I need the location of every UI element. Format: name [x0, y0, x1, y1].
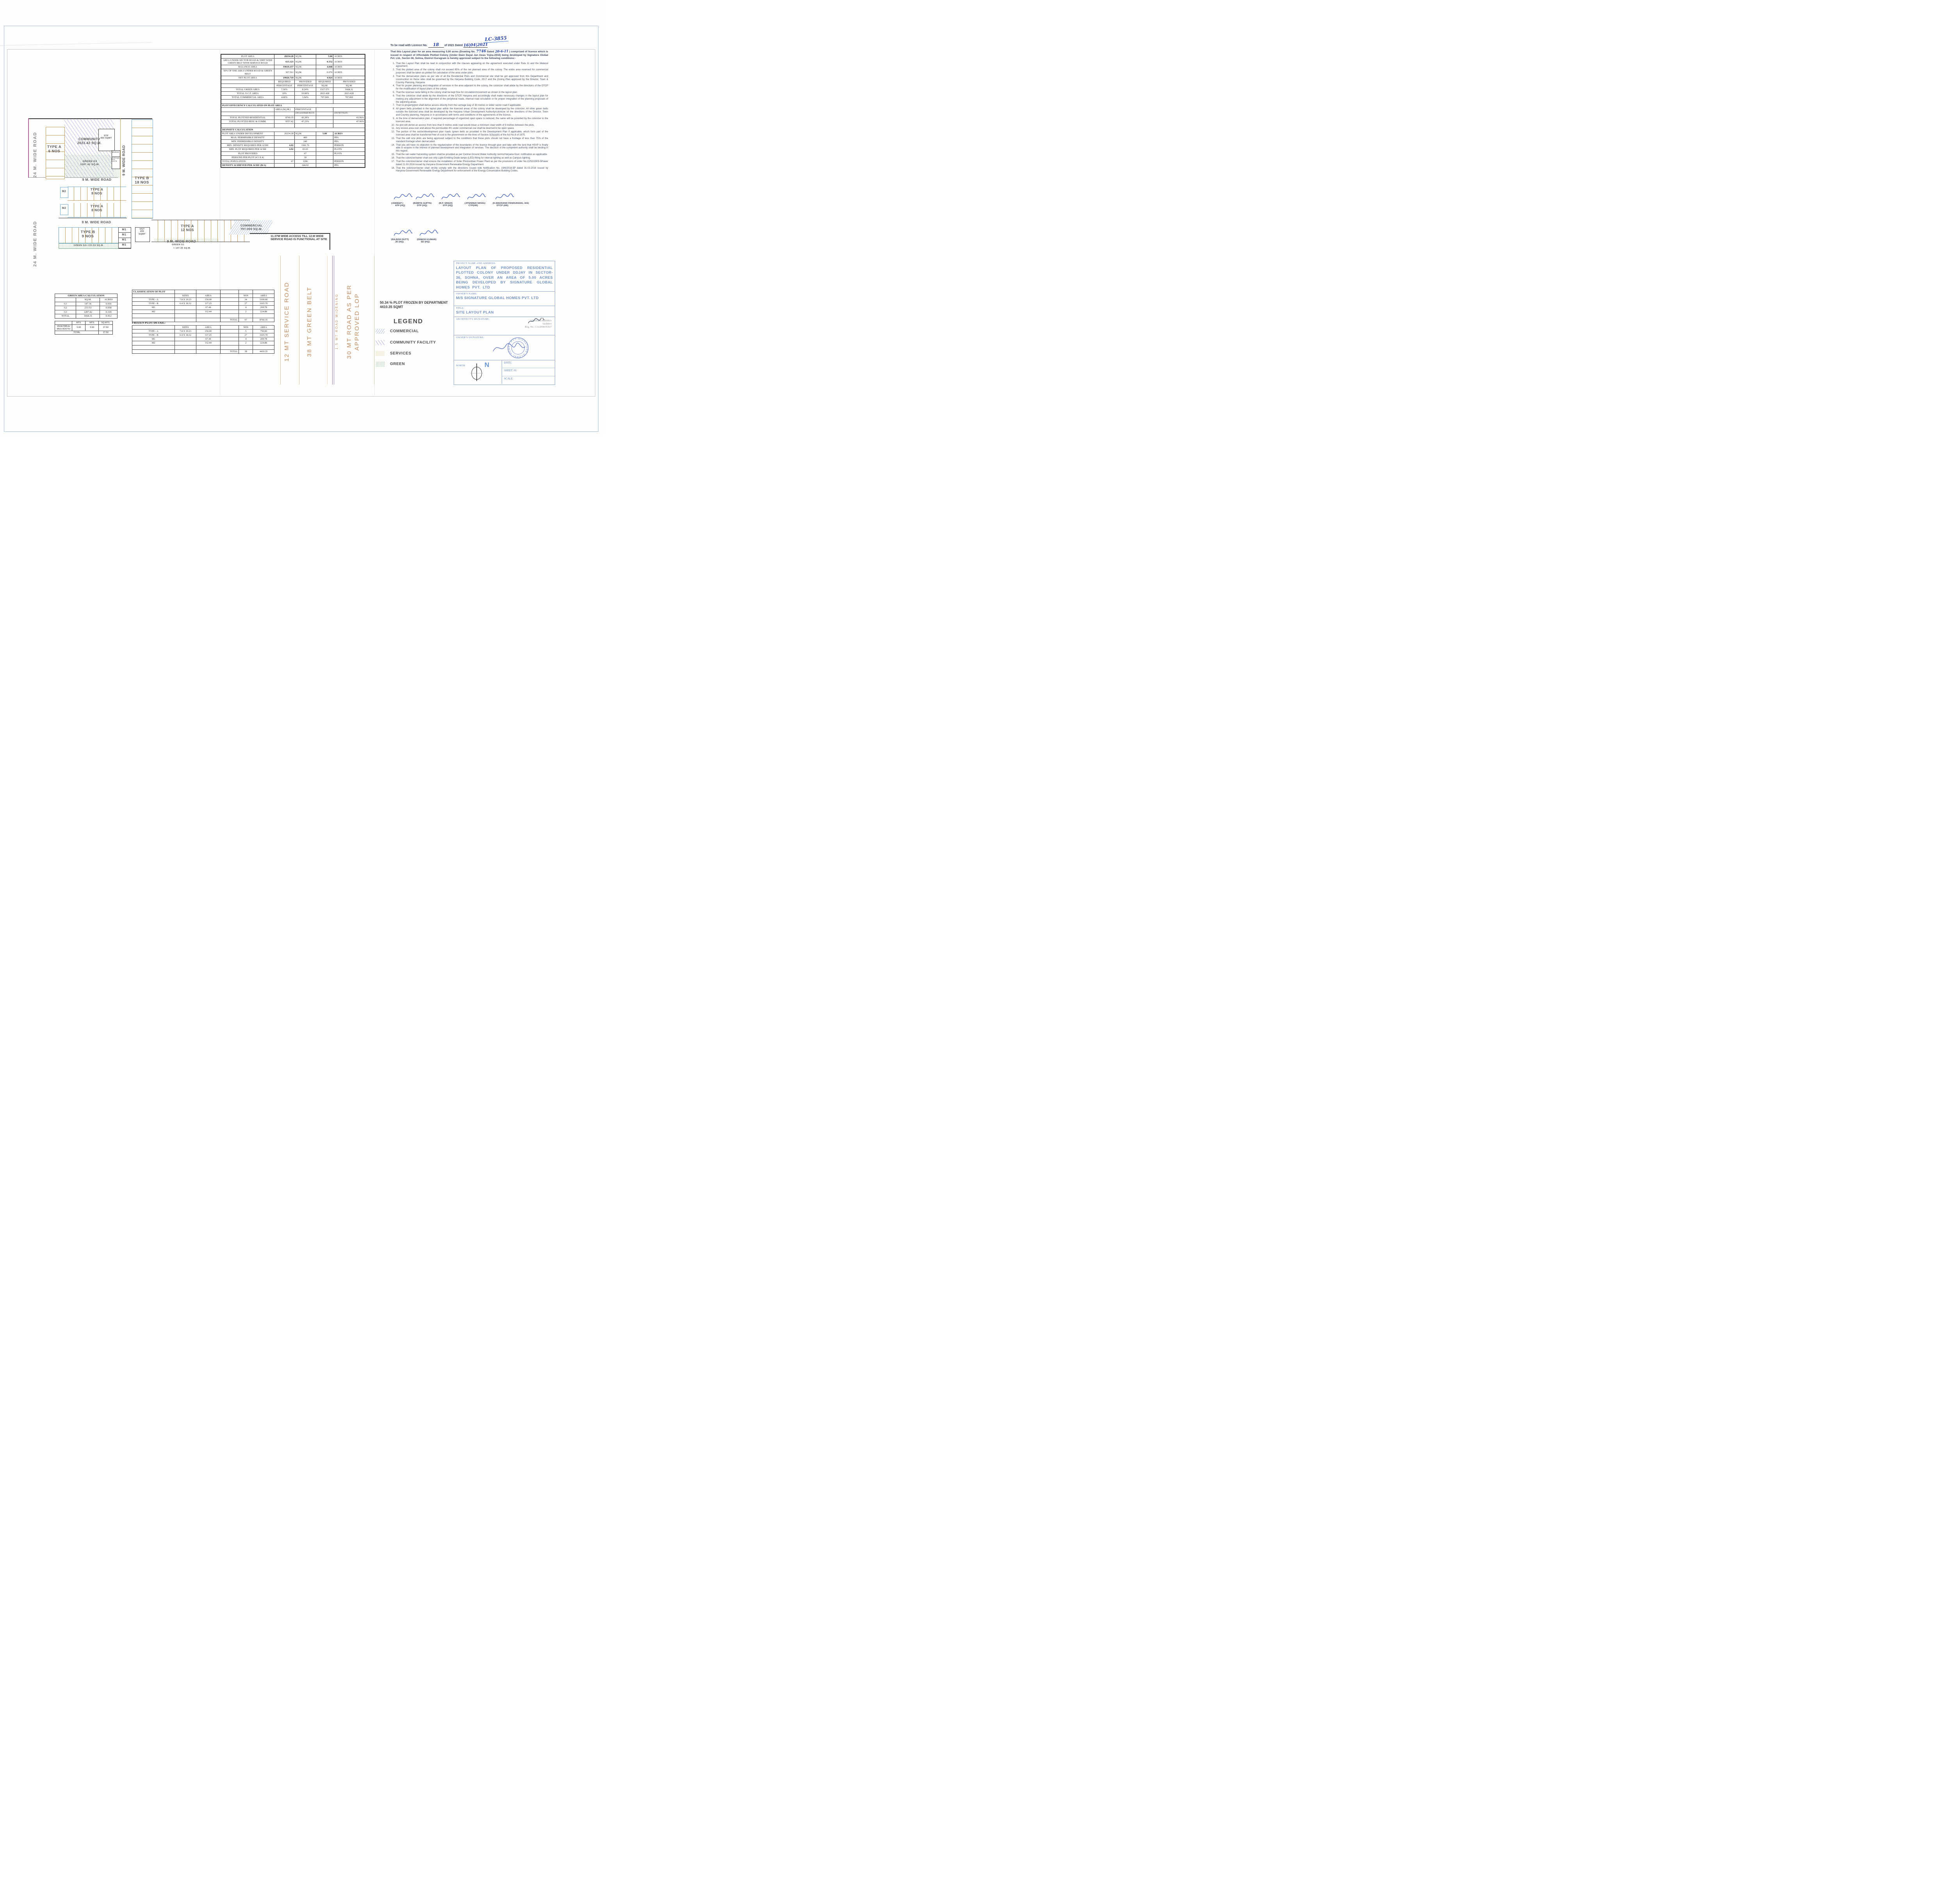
owner-label: OWNER'S NAME: — [456, 292, 553, 295]
table-cell: SQ.M. — [294, 76, 316, 80]
owner-signature-section: OWNER'S SIGNATURE: SIGNATURE GLOBAL HOME… — [454, 335, 555, 360]
condition-item: The portion of the sector/development pl… — [395, 130, 548, 137]
table-row: TYPE - A7.8 X 19.23150.00 5750.00 — [132, 330, 274, 333]
table-cell — [333, 108, 365, 112]
road-9m-mid: 9 M. WIDE ROAD — [77, 221, 116, 224]
table-cell — [221, 123, 274, 128]
table-cell — [316, 155, 333, 159]
architect-section: ARCHITECT'S SIGNATURE: AMITESH MISHRA Ar… — [454, 317, 555, 335]
legend-item-green: GREEN — [376, 362, 405, 367]
table-cell — [274, 136, 295, 140]
signatory-post: DTCP (HR) — [497, 205, 518, 207]
table-cell: 3165.70 — [253, 333, 274, 337]
table-row: PLOT AREA UNDER DEVELOPMENT20234.28SQ.M.… — [221, 132, 365, 135]
band-line-2 — [299, 256, 299, 385]
table-cell: MTS. — [72, 321, 85, 325]
table-cell: TYPE - B — [132, 302, 175, 306]
table-cell — [132, 349, 175, 353]
table-row: CLASSIFICATION OF PLOT — [132, 290, 274, 294]
table-cell: PPA — [333, 136, 365, 140]
condition-item: That the colonizer shall abide by the di… — [395, 94, 548, 104]
license-header-mid: of 2021 Dated — [445, 43, 463, 47]
table-cell — [175, 337, 196, 341]
signature-block: (BABITA GUPTA)DTP (HQ) — [413, 192, 438, 207]
table-row: TOTAL COMMERCIAL AREA4.00%3.94%797.06979… — [221, 96, 365, 100]
condition-item: That you will have no objection to the r… — [395, 144, 548, 153]
table-cell: AREA — [196, 294, 220, 298]
drawing-no-handwritten: 7746 — [476, 50, 486, 54]
table-cell: 400 — [294, 136, 316, 140]
table-cell: REQUIRED — [274, 80, 295, 84]
frozen-plot-heading: FROZEN PLOT DETAIL: — [132, 321, 166, 324]
north-n-letter: N — [484, 361, 489, 369]
table-cell — [316, 144, 333, 148]
table-cell — [175, 345, 196, 349]
table-cell — [196, 313, 220, 318]
table-cell — [220, 294, 239, 298]
table-cell: 2 — [239, 310, 253, 313]
condition-item: That no property/plot shall derive acces… — [395, 104, 548, 107]
road-24m-lower: 24 M. WIDE ROAD — [33, 218, 38, 269]
condition-item: No plot will derive an access from less … — [395, 124, 548, 127]
table-cell: 8760.35 — [274, 116, 295, 119]
table-row: MTS.MTS.SQ.MTS. — [55, 321, 113, 325]
table-row: 50% OF THE AREA UNDER ROAD & GREEN BELT3… — [221, 69, 365, 76]
table-cell: 117.25 — [196, 333, 220, 337]
table-cell: ACRES — [333, 59, 365, 65]
table-cell: VEGETABLE/ MILK BOOTH — [55, 325, 72, 331]
table-cell: 38 — [239, 349, 253, 353]
table-cell — [175, 349, 196, 353]
band-30mt-road-1: 30 MT ROAD AS PER — [346, 261, 353, 383]
table-cell: MIN. PLOT REQUIRED PER ACRE — [221, 148, 274, 151]
table-row: MIN. PERMISSIBLE DENSITY 240 PPA — [221, 140, 365, 144]
table-cell — [220, 326, 239, 330]
table-cell: 5100.00 — [253, 298, 274, 302]
table-cell: NET PLOT AREA — [221, 76, 274, 80]
table-cell: 117.25 — [196, 302, 220, 306]
signatory-post: STP (HQ) — [443, 205, 464, 207]
table-cell: ACRES — [100, 298, 118, 302]
table-cell: TOTAL GREEN AREA — [221, 87, 274, 91]
license-conditions-list: That this Layout Plan shall be read in c… — [390, 62, 548, 173]
table-cell: 10% — [274, 92, 295, 96]
table-cell: PLOT AREA — [221, 54, 274, 59]
table-cell — [274, 151, 295, 155]
legend-swatch — [376, 362, 385, 367]
table-row: DENSITY ACHIEVED PER ACRE (B/A) 244.92 P… — [221, 163, 365, 167]
dg-ess: DG/ESS — [111, 151, 120, 153]
table-cell: 0.152 — [316, 59, 333, 65]
table-cell — [175, 313, 196, 318]
table-cell: 1668.31 — [76, 314, 100, 318]
table-cell — [253, 290, 274, 294]
table-cell: 18 — [294, 155, 316, 159]
table-cell — [221, 112, 274, 116]
road-9m-mid-top — [59, 218, 127, 218]
table-cell: 4.924 — [316, 76, 333, 80]
table-cell: 6.4 X 18.32 — [175, 333, 196, 337]
table-cell: 4.848 — [316, 65, 333, 69]
plot-type-b18: TYPE B 18 NOS — [131, 176, 153, 185]
title-block: PROJECT NAME AND ADDRESS: LAYOUT PLAN OF… — [454, 261, 555, 385]
table-cell: 4 — [239, 306, 253, 310]
table-cell: NOS — [239, 326, 253, 330]
table-row: TYPE - A7.8 X 19.23150.00 345100.00 — [132, 298, 274, 302]
table-cell — [239, 290, 253, 294]
table-cell: PLOT EFFECIENCY CALCULATED ON PLOT AREA — [221, 104, 365, 108]
table-cell: PERSON — [333, 159, 365, 163]
table-cell: PROVIDED — [333, 80, 365, 84]
signatory-post: DTP (HQ) — [417, 205, 438, 207]
frozen-note: 50.34 % PLOT FROZEN BY DEPARTMENT 4410.3… — [380, 301, 458, 310]
table-cell: 307.561 — [274, 69, 295, 76]
drawing-date-handwritten: 20-6-21 — [495, 49, 509, 53]
table-cell: AREA — [196, 326, 220, 330]
legend-label: SERVICES — [390, 351, 411, 356]
table-cell — [274, 155, 295, 159]
table-row: TOTAL O.C.F. AREA10%10.00%2023.4282023.4… — [221, 92, 365, 96]
scan-crease-top — [0, 42, 152, 46]
signatory-post: SD (HQ) — [421, 241, 442, 243]
table-cell: 4.92 — [274, 148, 295, 151]
green-g1-area: = 147.36 SQ.M. — [173, 247, 201, 249]
table-cell: GREEN AREA CALCULATION — [55, 294, 118, 298]
project-section: PROJECT NAME AND ADDRESS: LAYOUT PLAN OF… — [454, 261, 555, 292]
table-row: TYPE - B6.4 X 18.32117.25 273165.70 — [132, 333, 274, 337]
table-cell: 19619.157 — [274, 65, 295, 69]
table-cell: TOTAL PLOTTED RESIDENTIAL — [221, 116, 274, 119]
table-cell — [221, 100, 274, 104]
condition-item: That the colonizer/owner shall strictly … — [395, 167, 548, 173]
type-b18-plots — [132, 119, 153, 219]
table-cell: 5.00 — [72, 325, 85, 331]
table-row: BALANCE AREA19619.157SQ.M.4.848ACRES — [221, 65, 365, 69]
table-cell — [221, 80, 274, 84]
ugt: UGT 200 SQMT — [135, 228, 149, 235]
table-cell: 8760.35 — [253, 318, 274, 322]
table-cell: 224.88 — [253, 310, 274, 313]
table-cell — [239, 313, 253, 318]
table-row: PLOT EFFECIENCY CALCULATED ON PLOT AREA — [221, 104, 365, 108]
table-cell — [220, 345, 239, 349]
table-cell: TOTAL POPULATION — [221, 159, 274, 163]
table-row: MIN. PLOT REQUIRED PER ACRE4.9265.65 PLO… — [221, 148, 365, 151]
table-cell — [333, 123, 365, 128]
north-cell: NORTH: N — [454, 360, 502, 384]
table-cell: 269.78 — [253, 337, 274, 341]
m1-4: M1 — [118, 243, 130, 247]
table-cell: M2 — [132, 341, 175, 345]
table-cell: PERSONS PER PLOT (4.5 X 4) — [221, 155, 274, 159]
table-cell: 224.88 — [253, 341, 274, 345]
table-cell — [239, 345, 253, 349]
table-cell — [220, 341, 239, 345]
table-cell: 19926.719 — [274, 76, 295, 80]
table-cell: SQ.M. — [294, 59, 316, 65]
signature-scribble — [494, 192, 515, 202]
condition-item: That for proper planning and integration… — [395, 84, 548, 91]
table-cell: M1 — [132, 337, 175, 341]
table-cell: AREA (SQ.M.) — [274, 108, 295, 112]
table-cell: 5 — [239, 330, 253, 333]
table-cell — [220, 333, 239, 337]
table-row — [132, 313, 274, 318]
table-cell — [132, 326, 175, 330]
plot-type-a8-1: TYPE A 8 NOS — [83, 188, 110, 195]
table-cell: 5.00 — [316, 132, 333, 135]
table-cell: 43.29% — [294, 116, 316, 119]
license-date-handwritten: 16|04|2021 — [463, 43, 488, 48]
plot-type-a12: TYPE A 12 NOS — [171, 224, 204, 232]
table-cell — [220, 310, 239, 313]
table-row: GREEN AREA CALCULATION — [55, 294, 118, 298]
table-cell: 112.44 — [196, 341, 220, 345]
table-row: (ON LICENSED PLOT) (ON NET PLOT) — [221, 112, 365, 116]
table-cell: (ON LICENSED PLOT) — [294, 112, 316, 116]
table-cell: 5.00 — [316, 54, 333, 59]
table-row: AREA UNDER SECTOR ROAD & 50MT WIDE GREEN… — [221, 59, 365, 65]
table-cell: MAX. PERMISSIBLE DENSITY — [221, 136, 274, 140]
table-cell: 67.44 — [196, 337, 220, 341]
plot-type-b9: TYPE B 9 NOS — [71, 230, 104, 239]
table-cell — [316, 136, 333, 140]
plot-type-a8-2: TYPE A 8 NOS — [83, 205, 110, 212]
table-cell: MIN. PERMISSIBLE DENSITY — [221, 140, 274, 144]
table-cell: MIN. DENSITY REQUIRED PER ACRE — [221, 144, 274, 148]
green-g1: GREEN G1 — [172, 244, 195, 246]
license-header: To be read with Licence No. 18 of 2021 D… — [390, 42, 548, 48]
condition-item: That the demarcation plans as per site o… — [395, 75, 548, 84]
legend-label: COMMUNITY FACILITY — [390, 340, 436, 345]
signature-scribble — [415, 192, 435, 202]
table-cell: 1287.42 — [76, 310, 100, 314]
signature-scribble — [440, 192, 461, 202]
table-cell — [175, 290, 196, 294]
condition-item: That the colonizer/owner shall ensure th… — [395, 160, 548, 166]
frozen-note-line2: 4410.35 SQMT — [380, 305, 458, 309]
road-9m-vert: 9 M. WIDE ROAD — [122, 137, 126, 183]
table-cell — [221, 84, 274, 87]
table-cell — [274, 163, 295, 167]
table-cell — [274, 140, 295, 144]
condition-item: That the plotted area of the colony shal… — [395, 68, 548, 75]
legend-swatch — [376, 340, 385, 345]
band-line-3 — [327, 256, 328, 385]
table-cell: 9557.42 — [274, 119, 295, 123]
table-cell — [316, 140, 333, 144]
table-cell — [294, 100, 316, 104]
condition-item: That the revenue rasta falling in the co… — [395, 91, 548, 94]
table-cell: PPA — [333, 163, 365, 167]
table-cell: M1 — [132, 306, 175, 310]
table-cell: 7.50% — [274, 87, 295, 91]
sheet-row: SHEET: 01 — [502, 368, 555, 376]
green-g3: GREEN G3 1287.42 SQ.M. — [68, 160, 111, 166]
table-cell: SQ.M. — [294, 132, 316, 135]
north-arrow-icon — [469, 362, 484, 382]
commercial-area: COMMERCIAL 797.069 SQ.M. — [233, 224, 269, 231]
table-row: PERSONS PER PLOT (4.5 X 4) 18 — [221, 155, 365, 159]
signature-block: (DINESH KUMAR)SD (HQ) — [417, 228, 442, 243]
band-road-widening: 1.5 MT ROAD WIDENING — [335, 269, 338, 374]
table-cell — [316, 159, 333, 163]
table-row — [132, 345, 274, 349]
table-cell — [316, 112, 333, 116]
table-cell: TYPE - B — [132, 333, 175, 337]
table-row: TOTAL PLOTTED RESIDENTIAL8760.3543.29% 4… — [221, 116, 365, 119]
table-cell: 1206 — [294, 159, 316, 163]
table-cell: 4410.35 — [253, 349, 274, 353]
table-cell: ACRES — [333, 69, 365, 76]
legend-label: GREEN — [390, 362, 405, 366]
license-number-handwritten: 18 — [433, 42, 439, 48]
table-cell: SQ.M. — [294, 65, 316, 69]
table-cell: 43.96% — [333, 116, 365, 119]
table-cell: PERCENTAGE — [294, 108, 316, 112]
table-cell: 4.00% — [274, 96, 295, 100]
table-cell: 10.00% — [294, 92, 316, 96]
table-cell: PERCENTAGE — [294, 84, 316, 87]
condition-item: That the rain water harvesting system sh… — [395, 153, 548, 156]
signature-block: (JITENDER SIHAG)CTP(HR) — [465, 192, 490, 207]
table-cell: 47.96% — [333, 119, 365, 123]
band-line-1 — [280, 256, 281, 385]
table-cell — [316, 100, 333, 104]
table-cell: 20234.28 — [274, 54, 295, 59]
legend-label: COMMERCIAL — [390, 329, 419, 333]
green-g2: GREEN G2= 233.53 SQ.M. — [62, 244, 116, 247]
table-cell: 615.123 — [274, 59, 295, 65]
table-cell — [220, 302, 239, 306]
table-cell: 27 — [239, 302, 253, 306]
table-cell: 2023.428 — [316, 92, 333, 96]
table-cell: 750.00 — [253, 330, 274, 333]
table-row — [221, 100, 365, 104]
legend-swatch — [376, 351, 385, 356]
table-cell: TOTAL — [55, 331, 99, 334]
m2-2: M2 — [61, 207, 68, 210]
table-cell — [196, 318, 220, 322]
table-cell — [274, 100, 295, 104]
table-row: TYPE - B6.4 X 18.32117.25 273165.70 — [132, 302, 274, 306]
table-cell — [316, 108, 333, 112]
license-header-prefix: To be read with Licence No. — [390, 43, 427, 47]
table-cell: SIZES — [175, 294, 196, 298]
table-cell: 147.36 — [76, 302, 100, 306]
condition-item: Any excess area over and above the permi… — [395, 127, 548, 130]
table-cell: PERCENTAGE — [274, 84, 295, 87]
table-cell: 67 — [239, 318, 253, 322]
table-cell: 269.78 — [253, 306, 274, 310]
table-cell: SIZES — [175, 326, 196, 330]
table-row: TOTAL1668.310.412 — [55, 314, 118, 318]
table-cell: TOTAL COMMERCIAL AREA — [221, 96, 274, 100]
band-38mt-green-belt: 38 MT GREEN BELT — [306, 261, 313, 383]
table-cell: 0.318 — [100, 310, 118, 314]
m1-1: M1 — [118, 228, 130, 232]
table-cell — [220, 306, 239, 310]
signature-block: (RAJESH DUTT)JD (HQ) — [391, 228, 416, 243]
condition-item: At the time of demarcation plan, if requ… — [395, 117, 548, 123]
legend-title: LEGEND — [394, 318, 423, 325]
table-row: TOTAL GREEN AREA7.50%8.24%1517.5711668.3… — [221, 87, 365, 91]
table-cell: AREA — [253, 326, 274, 330]
table-cell — [196, 349, 220, 353]
table-cell: ACRES — [333, 132, 365, 135]
title-text: SITE LAYOUT PLAN — [456, 310, 553, 315]
road-9m-upper: 9 M. WIDE ROAD — [77, 178, 116, 182]
table-cell — [220, 330, 239, 333]
table-cell: TOTAL — [220, 349, 239, 353]
table-cell: 0.058 — [100, 306, 118, 310]
architect-signature-scribble — [527, 318, 545, 325]
legend-swatch — [376, 329, 385, 334]
table-cell: 67 — [294, 151, 316, 155]
table-cell: AREA UNDER SECTOR ROAD & 50MT WIDE GREEN… — [221, 59, 274, 65]
owner-section: OWNER'S NAME: M/S SIGNATURE GLOBAL HOMES… — [454, 292, 555, 306]
veg-booth-table: MTS.MTS.SQ.MTS.VEGETABLE/ MILK BOOTH5.00… — [55, 321, 113, 335]
table-cell — [333, 155, 365, 159]
table-cell: 7.8 X 19.23 — [175, 330, 196, 333]
architect-stamp-reg: Reg. No.: CA/2008/41927 — [525, 326, 552, 329]
legend-item-community-facility: COMMUNITY FACILITY — [376, 340, 436, 345]
signature-block: (JAIDEEP )ATP (HQ) — [391, 192, 416, 207]
table-cell: 47.23% — [294, 119, 316, 123]
intro-mid: Dated — [487, 50, 494, 53]
table-row: REQUIREDPROVIDEDREQUIREDPROVIDED — [221, 80, 365, 84]
table-cell: 34 — [239, 298, 253, 302]
plan-left-boundary — [28, 118, 29, 178]
table-row: SIZESAREA NOSAREA — [132, 326, 274, 330]
m2-1: M2 — [61, 190, 68, 193]
table-row: NET PLOT AREA19926.719SQ.M.4.924ACRES — [221, 76, 365, 80]
table-row: SQ.M.ACRES — [55, 298, 118, 302]
condition-item: That the colonizer/owner shall use only … — [395, 157, 548, 160]
license-conditions-block: To be read with Licence No. 18 of 2021 D… — [390, 42, 548, 173]
table-cell: 1181.76 — [294, 144, 316, 148]
table-cell: DENSITY ACHIEVED PER ACRE (B/A) — [221, 163, 274, 167]
table-cell: (ON NET PLOT) — [333, 112, 365, 116]
table-cell — [55, 321, 72, 325]
table-cell — [220, 298, 239, 302]
table-cell: ACRES — [333, 54, 365, 59]
table-cell: 240 — [294, 140, 316, 144]
table-cell: TYPE - A — [132, 330, 175, 333]
table-cell: TOTAL PLOTTED RESI. & COMM. — [221, 119, 274, 123]
table-cell: PLOT PROVIDED — [221, 151, 274, 155]
owner-text: M/S SIGNATURE GLOBAL HOMES PVT. LTD — [456, 296, 553, 301]
table-cell: M2 — [132, 310, 175, 313]
table-cell: 4 — [239, 337, 253, 341]
area-statement-table: PLOT AREA20234.28SQ.M.5.00ACRESAREA UNDE… — [221, 54, 365, 168]
table-cell: BALANCE AREA — [221, 65, 274, 69]
date-sheet-scale-cell: DATE: SHEET: 01 SCALE: — [502, 360, 555, 384]
table-cell: 67 — [274, 159, 295, 163]
table-cell: SQ.M. — [294, 69, 316, 76]
table-cell: MTS. — [85, 321, 99, 325]
table-cell: SQ.M. — [76, 298, 100, 302]
table-row: MIN. DENSITY REQUIRED PER ACRE4.921181.7… — [221, 144, 365, 148]
table-row: SIZESAREA NOSAREA — [132, 294, 274, 298]
table-cell: G2 — [55, 306, 76, 310]
table-cell: 0.412 — [100, 314, 118, 318]
table-cell — [316, 119, 333, 123]
condition-item: All green belts provided in the layout p… — [395, 107, 548, 117]
table-cell: 3.94% — [294, 96, 316, 100]
table-cell: 20234.28 — [274, 132, 295, 135]
table-cell — [55, 298, 76, 302]
